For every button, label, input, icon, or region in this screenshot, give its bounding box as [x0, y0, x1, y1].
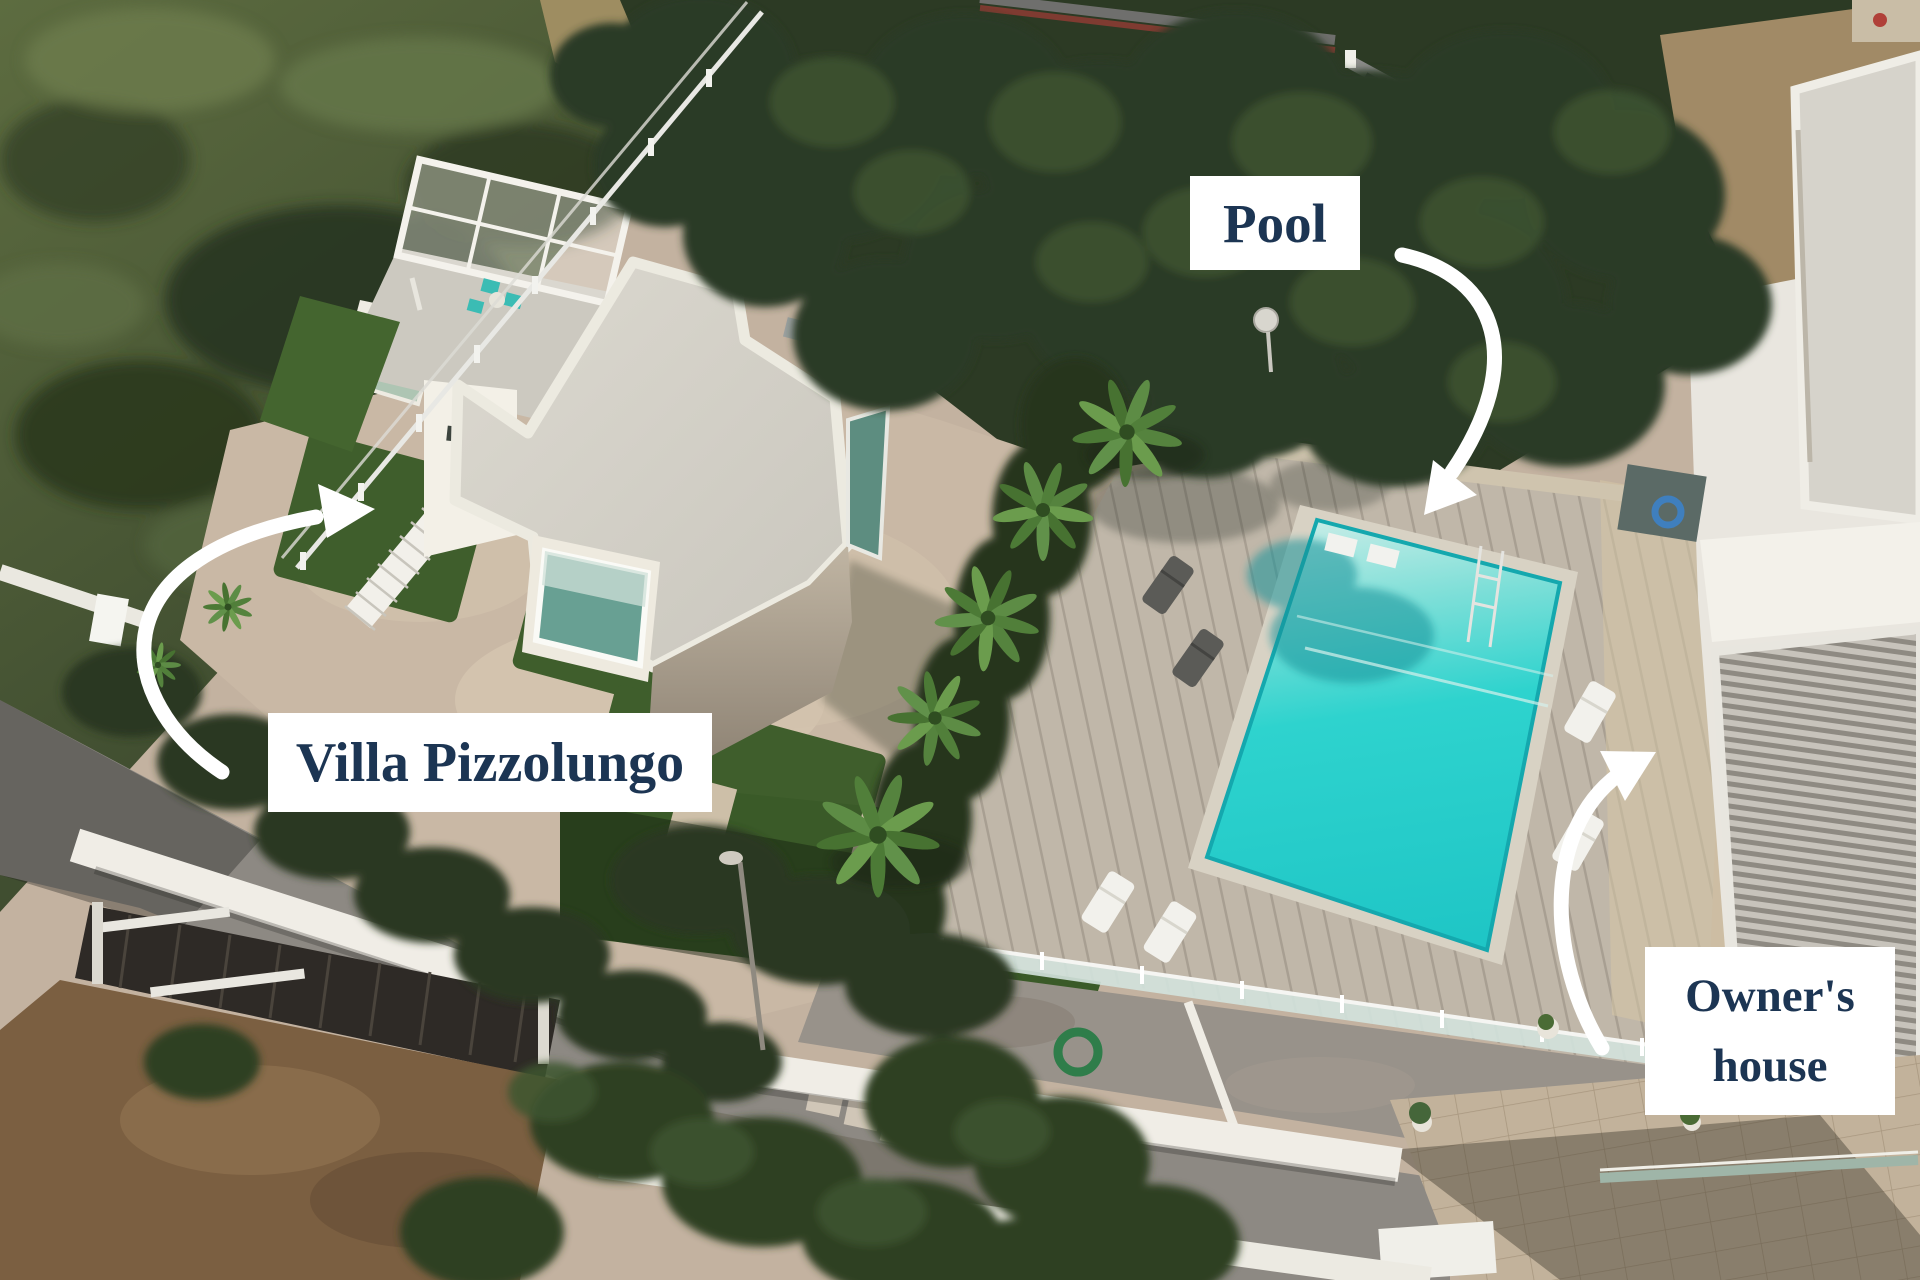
pool-label: Pool [1190, 176, 1360, 270]
owner-label: Owner's house [1645, 947, 1895, 1115]
aerial-photo: Pool Villa Pizzolungo Owner's house [0, 0, 1920, 1280]
aerial-scene [0, 0, 1920, 1280]
villa-label: Villa Pizzolungo [268, 713, 712, 812]
